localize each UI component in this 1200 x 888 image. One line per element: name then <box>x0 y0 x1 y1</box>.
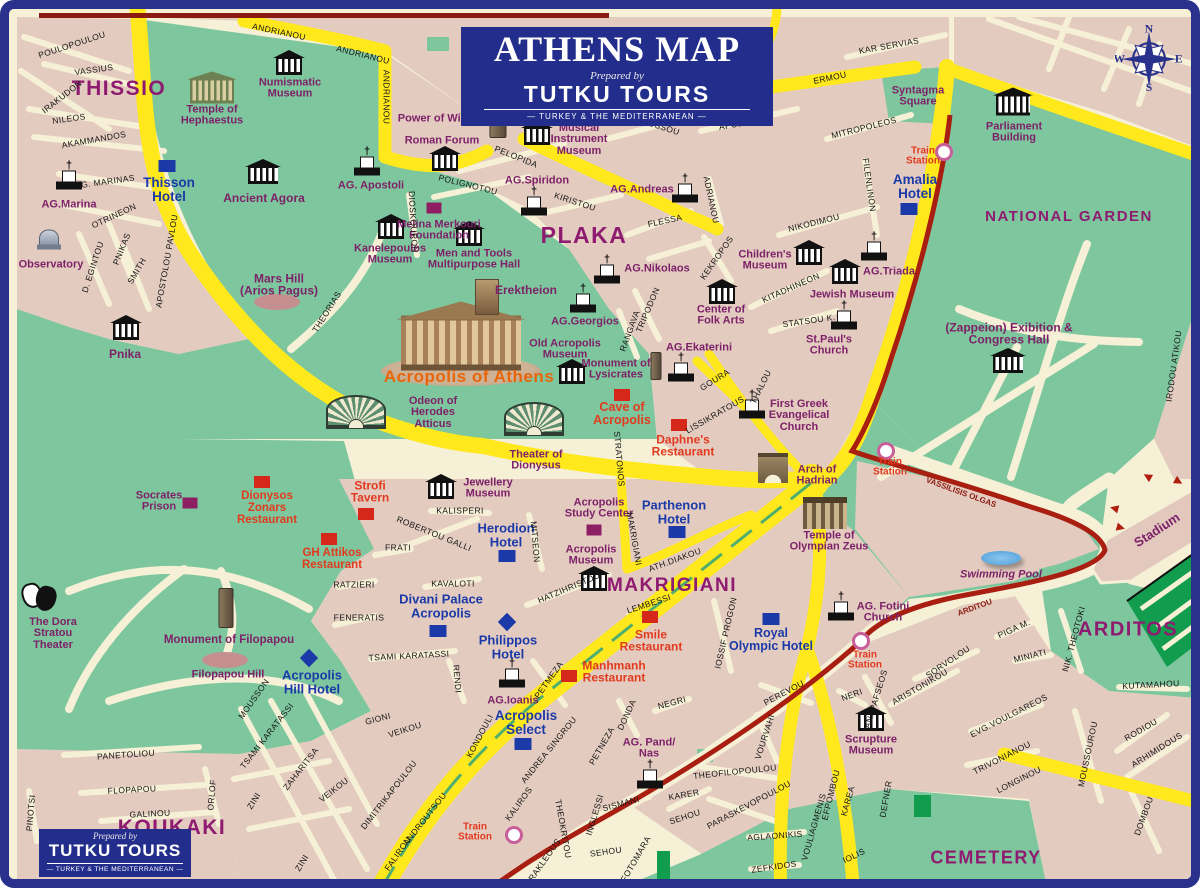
brand-tagline: — TURKEY & THE MEDITERRANEAN — <box>47 863 184 873</box>
map-label: LISSIKRATOUS <box>684 395 745 436</box>
map-label: KALISPERI <box>436 507 484 516</box>
map-label: IRODOU ATIKOU <box>1165 330 1184 403</box>
map-label: TSAMI KARATASSI <box>368 649 449 662</box>
map-label: AG.Spiridon <box>505 175 569 186</box>
map-label: Filopapou Hill <box>192 669 265 680</box>
map-label: APOSTOLOU PAVLOU <box>154 214 179 309</box>
map-label: KAVALOTI <box>431 580 475 589</box>
map-label: VASSILISIS OLGAS <box>925 476 997 509</box>
map-label: MAKRIGIANI <box>625 512 643 567</box>
map-label: (Zappeion) Exibition & Congress Hall <box>945 322 1072 347</box>
map-label: PLAKA <box>541 224 628 248</box>
map-label: Acropolis Museum <box>566 545 617 568</box>
map-label: MITSEON <box>529 521 541 563</box>
map-label: Syntagma Square <box>892 86 945 109</box>
map-label: ORLOF <box>206 779 218 811</box>
map-label: Temple of Olympian Zeus <box>790 531 869 554</box>
map-label: Royal Olympic Hotel <box>729 627 813 653</box>
map-label: MAKRIGIANI <box>607 576 737 596</box>
map-label: Acropolis Hill Hotel <box>282 668 342 695</box>
map-label: AGLAONIKIS <box>747 830 803 843</box>
map-label: DOMBOU <box>1133 795 1155 836</box>
map-label: RATZIERI <box>333 581 374 590</box>
map-label: CEMETERY <box>930 849 1041 868</box>
map-label: Daphne's Restaurant <box>652 434 715 459</box>
map-label: INGLESSI <box>585 793 606 836</box>
map-label: Divani Palace Acropolis <box>399 592 483 619</box>
map-label: SISMANI <box>602 795 641 813</box>
map-label: NEGRI <box>657 695 687 711</box>
map-label: GALINOU <box>129 809 170 820</box>
map-label: SMITH <box>126 256 148 285</box>
map-label: Acropolis Study Center <box>565 498 633 521</box>
prepared-by-text: Prepared by <box>39 831 191 841</box>
map-label: POLIGNOTOU <box>438 173 499 196</box>
map-label: Train Station <box>848 651 882 672</box>
map-label: VOURVAHI <box>754 713 777 760</box>
map-label: Herodion Hotel <box>477 521 534 548</box>
map-label: GOURA <box>699 367 732 392</box>
map-label: AG.Ioanis <box>487 695 538 706</box>
map-label: STRATONOS <box>612 431 626 487</box>
map-label: Theater of Dionysus <box>509 450 562 473</box>
map-label: Ancient Agora <box>223 192 305 204</box>
map-label: IOLIS <box>841 847 866 865</box>
prepared-by-text: Prepared by <box>461 70 773 82</box>
map-label: Monument of Lysicrates <box>581 359 650 382</box>
map-label: SEHOU <box>668 808 701 826</box>
map-label: Stadium <box>1132 510 1182 549</box>
map-label: ANDRIANOU <box>251 22 306 42</box>
map-title: ATHENS MAP <box>461 31 773 69</box>
compass-s: S <box>1146 81 1153 91</box>
map-label: AG. Pand/ Nas <box>623 738 676 761</box>
map-label: HATZIHRISTOU <box>537 571 602 605</box>
map-label: RODIOU <box>1123 717 1159 743</box>
map-label: KALIROS <box>504 785 534 822</box>
map-label: NIKODIMOU <box>787 212 840 233</box>
map-label: LONGINOU <box>995 765 1042 795</box>
map-label: ANAPAFSEOS <box>863 669 889 730</box>
map-label: KARER <box>668 788 700 802</box>
map-label: KIRISTOU <box>553 191 597 213</box>
map-label: Smile Restaurant <box>620 629 683 654</box>
map-label: Scrupture Museum <box>845 735 897 758</box>
map-label: St.Paul's Church <box>806 335 852 358</box>
map-label: FRATI <box>385 544 411 553</box>
map-label: Amalia Hotel <box>893 173 937 201</box>
footer-logo: Prepared by TUTKU TOURS — TURKEY & THE M… <box>39 829 191 877</box>
map-label: MITROPOLEOS <box>831 116 898 141</box>
map-label: VEIKOU <box>318 776 351 804</box>
map-label: Pnika <box>109 348 141 360</box>
map-label: SEHOU <box>589 845 622 858</box>
map-label: FOTOMARA <box>619 835 652 884</box>
athens-tourist-map: THISSIOPLAKAMAKRIGIANIKOUKAKIARDITOSCEME… <box>0 0 1200 888</box>
map-label: DIOSKOURON <box>407 191 419 253</box>
map-label: ANDRIANOU <box>335 44 390 66</box>
map-label: ► <box>1105 500 1122 518</box>
map-label: AG.Nikolaos <box>624 263 689 274</box>
map-label: PETNEZA <box>588 726 617 767</box>
map-label: PARASKEVOPOULOU <box>706 779 793 831</box>
map-label: NERI <box>840 687 864 703</box>
map-label: Numismatic Museum <box>259 78 321 101</box>
map-label: FILENLINON <box>861 158 877 213</box>
map-label: PETMEZA <box>533 660 565 700</box>
map-label: Jewish Museum <box>810 289 894 300</box>
map-label: D. EGINTOU <box>81 240 106 294</box>
map-label: ATH.DIAKOU <box>647 546 702 573</box>
map-label: POULOPOULOU <box>37 30 106 60</box>
map-label: DIMITRIKAPOULOU <box>359 759 418 831</box>
map-label: STATSOU K. <box>782 313 836 329</box>
compass-e: E <box>1175 52 1183 65</box>
map-label: Mars Hill (Arios Pagus) <box>240 273 318 298</box>
map-label: NATIONAL GARDEN <box>985 209 1153 225</box>
map-label: Philippos Hotel <box>479 633 538 660</box>
map-label: PELOPIDA <box>493 144 539 169</box>
map-label: AG. MARINAS <box>75 173 136 190</box>
map-label: Odeon of Herodes Atticus <box>409 396 457 430</box>
map-label: Train Station <box>458 823 492 844</box>
map-label: PEREVOU <box>762 679 805 708</box>
map-label: Cave of Acropolis <box>593 401 651 427</box>
map-label: KEKROPOS <box>699 235 735 282</box>
map-label: Jewellery Museum <box>463 478 513 501</box>
map-label: KAREA <box>840 785 857 817</box>
map-label: OTRINEON <box>90 202 137 230</box>
map-label: Train Station <box>906 147 940 168</box>
compass-n: N <box>1145 23 1154 36</box>
map-label: Acropolis Select <box>495 709 557 737</box>
map-label: Parthenon Hotel <box>642 498 706 525</box>
compass-rose-icon: N E S W <box>1115 23 1183 91</box>
brand-name: TUTKU TOURS <box>39 841 191 861</box>
map-labels-layer: THISSIOPLAKAMAKRIGIANIKOUKAKIARDITOSCEME… <box>9 9 1191 879</box>
map-label: Arch of Hadrian <box>797 465 838 488</box>
map-label: KAR SERVIAS <box>858 36 920 55</box>
map-label: PANETOLIOU <box>97 749 155 762</box>
map-label: DONDA <box>616 698 638 731</box>
map-label: Monument of Filopapou <box>164 635 294 647</box>
map-label: FALIROU <box>383 835 413 872</box>
map-label: Acropolis of Athens <box>384 368 554 386</box>
map-label: Parliament Building <box>986 122 1042 145</box>
map-label: AG. Apostoli <box>338 180 404 191</box>
map-label: MOUSSOUROU <box>1077 720 1100 787</box>
map-label: ► <box>1169 471 1188 491</box>
map-label: Manhmanh Restaurant <box>582 660 645 685</box>
map-label: ADRIANOU <box>702 176 721 225</box>
map-label: ERMOU <box>813 70 848 86</box>
map-label: ANDRIANOU <box>382 70 391 125</box>
brand-tagline: — TURKEY & THE MEDITERRANEAN — <box>484 109 749 121</box>
map-label: AG.Marina <box>41 199 96 210</box>
map-label: Train Station <box>873 458 907 479</box>
map-label: ► <box>1112 518 1129 536</box>
map-label: NILEOS <box>52 112 86 125</box>
map-label: The Dora Stratou Theater <box>29 617 77 651</box>
map-label: THEOFILOPOULOU <box>693 763 777 781</box>
map-label: Temple of Hephaestus <box>181 105 243 128</box>
map-label: FLESSA <box>647 213 683 229</box>
map-label: TRIPODON <box>635 286 662 334</box>
map-label: PNIKAS <box>112 232 133 266</box>
map-label: ZINI <box>294 853 311 873</box>
map-label: Observatory <box>19 259 84 270</box>
map-label: MOUSSON <box>237 677 271 720</box>
map-label: PIGA M. <box>996 618 1031 640</box>
map-label: KONDOULI <box>465 713 495 759</box>
map-label: RENDI <box>451 664 462 693</box>
map-label: Erektheion <box>495 284 557 296</box>
map-label: ARISTONIKOU <box>891 667 950 706</box>
map-label: ► <box>1137 467 1156 487</box>
map-label: AKAMMANDOS <box>61 130 127 150</box>
map-label: Roman Forum <box>405 135 480 146</box>
map-label: ZAHARITSA <box>282 746 321 792</box>
brand-name: TUTKU TOURS <box>461 82 773 107</box>
map-label: Socrates Prison <box>136 491 182 514</box>
map-label: FENERATIS <box>334 614 385 623</box>
map-label: AG.Triada <box>863 266 915 277</box>
map-label: KUTAMAHOU <box>1122 679 1180 691</box>
compass-w: W <box>1115 52 1125 65</box>
map-label: EVG.VOULGAREOS <box>969 693 1049 740</box>
map-label: ARDITOU <box>957 598 994 618</box>
title-banner: ATHENS MAP Prepared by TUTKU TOURS — TUR… <box>461 27 773 126</box>
map-label: MINIATI <box>1013 648 1047 665</box>
map-label: FLOPAPOU <box>107 784 156 795</box>
map-label: THISSIO <box>72 78 167 100</box>
map-label: VEIKOU <box>387 720 423 739</box>
map-label: ZINI <box>246 791 263 811</box>
map-label: GH Attikos Restaurant <box>302 548 362 572</box>
map-label: Men and Tools Multipurpose Hall <box>428 249 520 272</box>
map-label: Thisson Hotel <box>143 176 195 204</box>
map-label: VASSIUS <box>74 63 114 77</box>
map-label: ZEFKIDOS <box>751 859 798 874</box>
map-label: AG.Andreas <box>610 184 674 195</box>
map-label: AG.Georgios <box>551 316 619 327</box>
map-label: DEFNER <box>878 780 893 818</box>
map-label: Dionysos Zonars Restaurant <box>237 491 297 527</box>
map-label: AG.Ekaterini <box>666 342 732 353</box>
map-label: Strofi Tavern <box>351 480 389 505</box>
map-label: IRAKLEOUS <box>525 837 562 885</box>
map-label: First Greek Evangelical Church <box>769 399 830 433</box>
map-label: ARDITOS <box>1078 620 1178 641</box>
map-label: Children's Museum <box>738 250 791 273</box>
map-label: AG. Fotini Church <box>857 602 910 625</box>
map-label: Musical Instrument Museum <box>551 123 608 157</box>
map-label: Center of Folk Arts <box>697 305 745 328</box>
map-label: PINOTSI <box>25 794 37 831</box>
map-label: GIONI <box>364 711 391 726</box>
map-label: Swimming Pool <box>960 569 1042 580</box>
